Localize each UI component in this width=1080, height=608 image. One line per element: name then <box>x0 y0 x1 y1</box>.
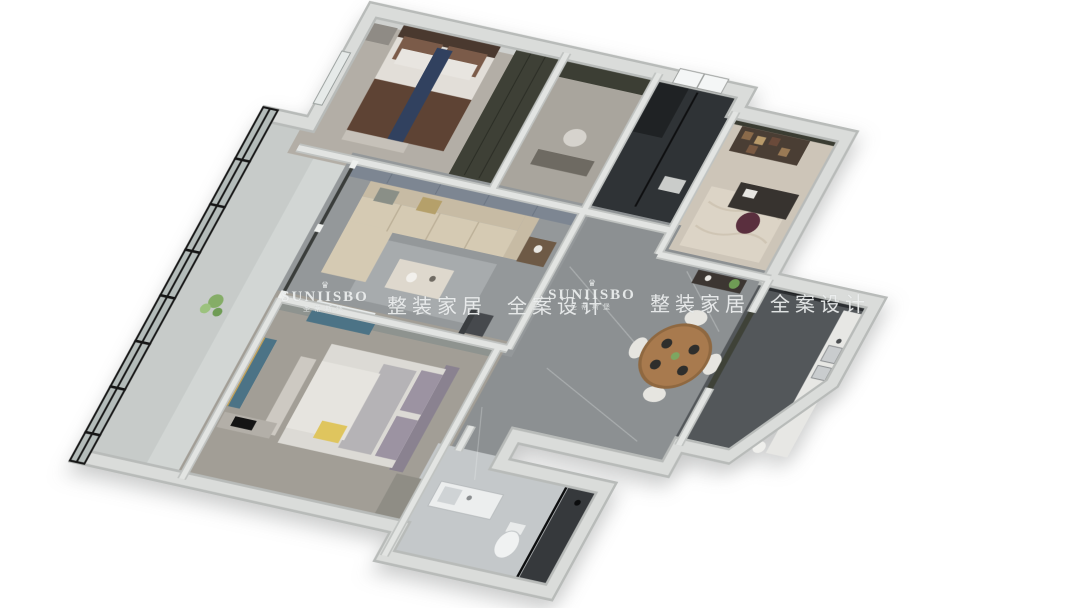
floorplan-stage: ♛ SUNIISBO 圣蒂斯堡 整装家居 全案设计 ♛ SUNIISBO 圣蒂斯… <box>0 0 1080 608</box>
floorplan-3d-render <box>0 0 1080 608</box>
